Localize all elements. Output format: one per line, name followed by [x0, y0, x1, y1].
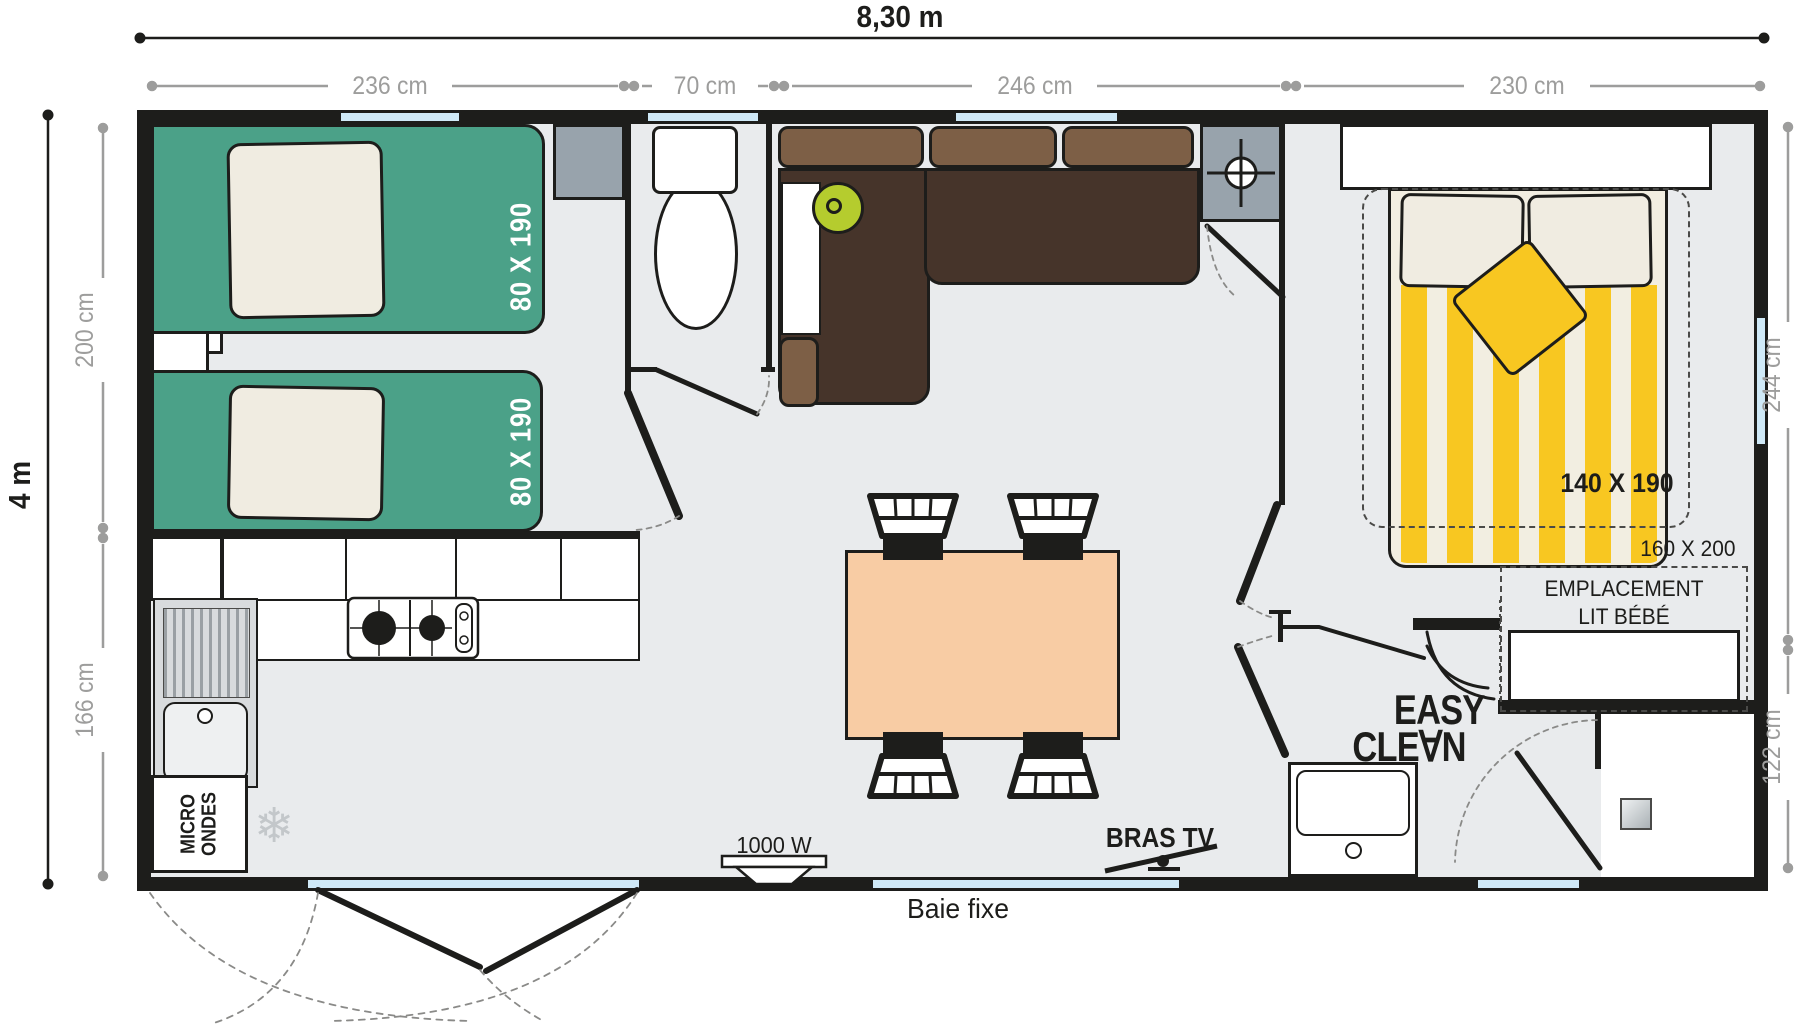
- tv-bracket-icon: [1105, 846, 1217, 871]
- heater-icon: [722, 856, 826, 884]
- dim-dot: [135, 33, 145, 43]
- dining-chairs: [870, 496, 1096, 796]
- plan-linework: [0, 0, 1800, 1026]
- chair: [1010, 732, 1096, 796]
- chair: [1010, 496, 1096, 560]
- dim-dot: [1759, 33, 1769, 43]
- hob-icon: [348, 598, 478, 658]
- chair: [870, 732, 956, 796]
- crosshair-icon: [1207, 139, 1275, 207]
- floor-plan: 80 X 190 80 X 190 MICRO ONDES ❄ 140 X: [0, 0, 1800, 1026]
- dim-dot: [43, 110, 53, 120]
- chair: [870, 496, 956, 560]
- dim-dot: [43, 879, 53, 889]
